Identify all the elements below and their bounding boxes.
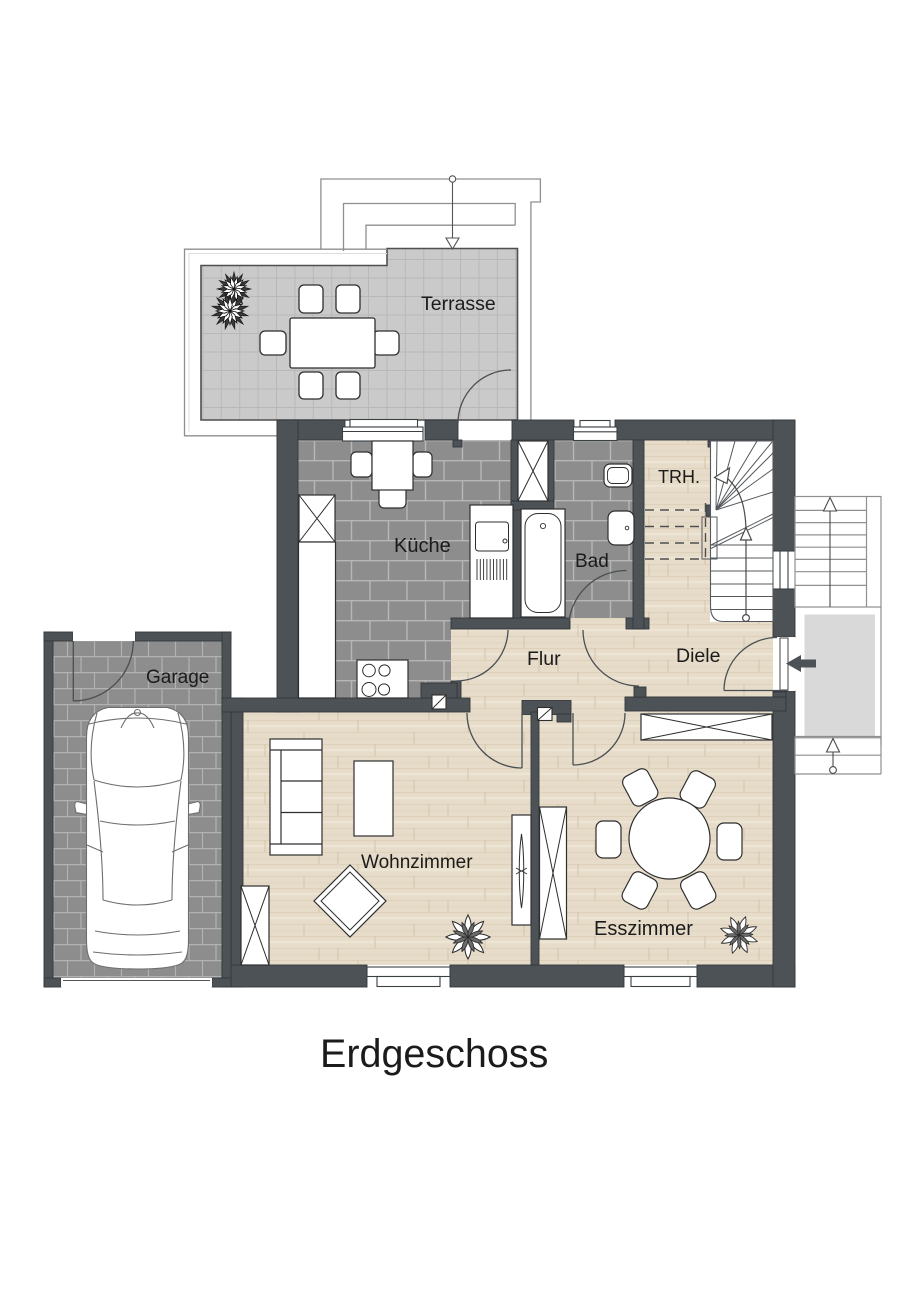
svg-text:Garage: Garage <box>146 667 209 688</box>
svg-text:Terrasse: Terrasse <box>421 293 496 315</box>
svg-text:Diele: Diele <box>676 645 720 667</box>
svg-text:Erdgeschoss: Erdgeschoss <box>320 1032 548 1076</box>
svg-text:Bad: Bad <box>575 551 609 572</box>
svg-text:Esszimmer: Esszimmer <box>594 918 693 940</box>
svg-text:Küche: Küche <box>394 535 451 557</box>
svg-text:Wohnzimmer: Wohnzimmer <box>361 852 473 873</box>
svg-text:Flur: Flur <box>527 648 561 670</box>
svg-text:TRH.: TRH. <box>658 467 700 487</box>
